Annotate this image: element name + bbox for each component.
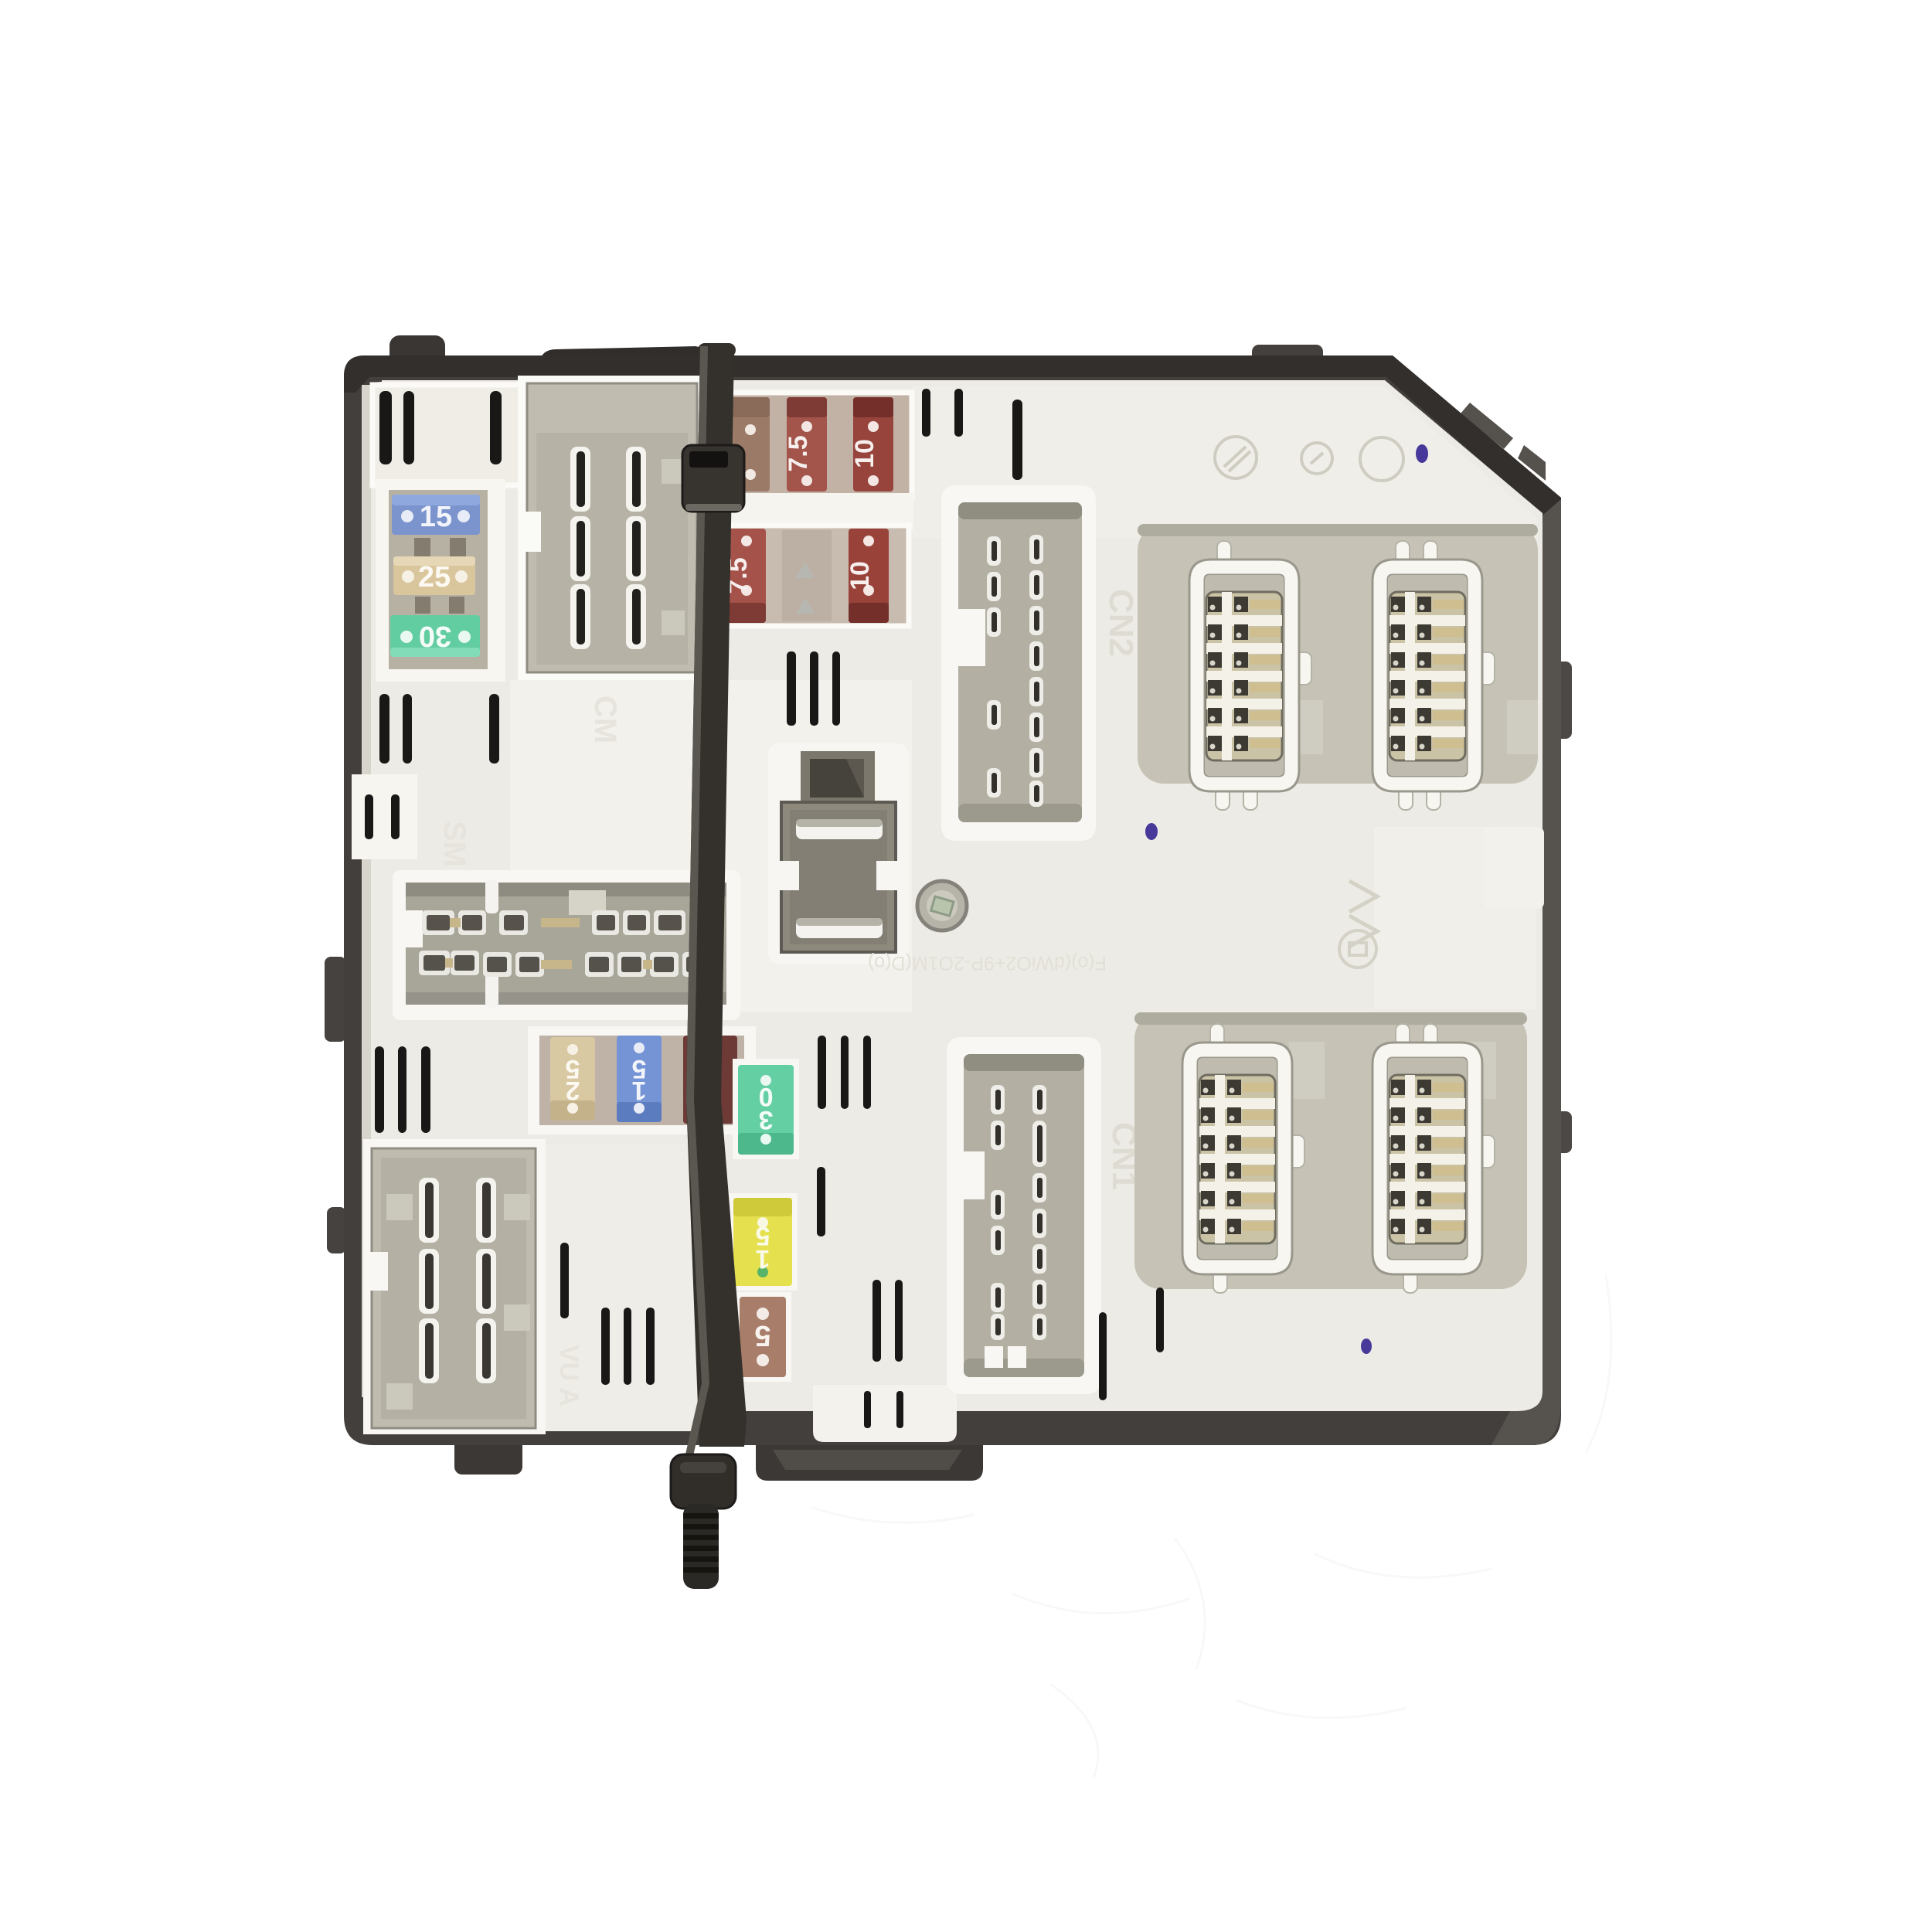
svg-text:7.5: 7.5 bbox=[784, 435, 813, 471]
svg-text:10: 10 bbox=[845, 561, 875, 590]
svg-text:SM: SM bbox=[437, 821, 471, 867]
svg-text:5: 5 bbox=[754, 1319, 770, 1352]
svg-text:3: 3 bbox=[759, 1105, 774, 1134]
svg-text:2: 2 bbox=[566, 1076, 580, 1105]
svg-text:CN2: CN2 bbox=[1102, 589, 1140, 657]
svg-text:15: 15 bbox=[420, 501, 452, 533]
svg-text:CM: CM bbox=[588, 696, 622, 743]
svg-text:1: 1 bbox=[632, 1076, 647, 1105]
svg-text:30: 30 bbox=[419, 620, 451, 652]
svg-text:1: 1 bbox=[756, 1244, 770, 1274]
svg-text:F(o)(dWiO2+9P-2O1M(D(o): F(o)(dWiO2+9P-2O1M(D(o) bbox=[868, 952, 1107, 974]
svg-text:25: 25 bbox=[418, 561, 451, 594]
svg-text:VU A: VU A bbox=[554, 1345, 583, 1406]
svg-text:10: 10 bbox=[850, 439, 879, 468]
